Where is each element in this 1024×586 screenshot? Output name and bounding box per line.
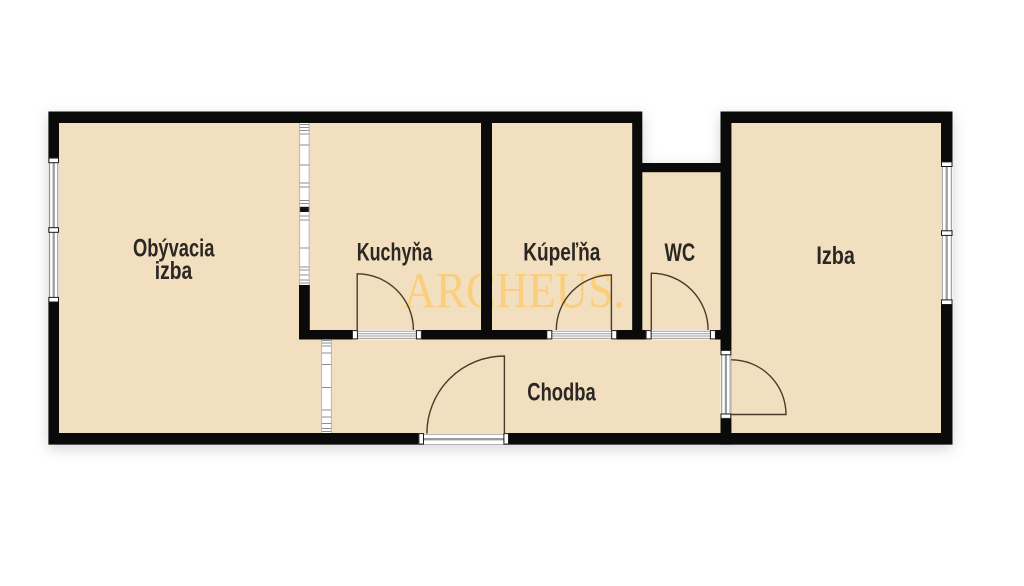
svg-text:Kuchyňa: Kuchyňa xyxy=(357,238,433,266)
svg-text:Kúpeľňa: Kúpeľňa xyxy=(523,238,601,266)
svg-text:Chodba: Chodba xyxy=(527,378,596,406)
svg-text:ARCHEUS.: ARCHEUS. xyxy=(404,264,625,320)
svg-text:Izba: Izba xyxy=(816,242,855,270)
svg-text:izba: izba xyxy=(155,257,193,285)
svg-text:WC: WC xyxy=(664,239,695,267)
